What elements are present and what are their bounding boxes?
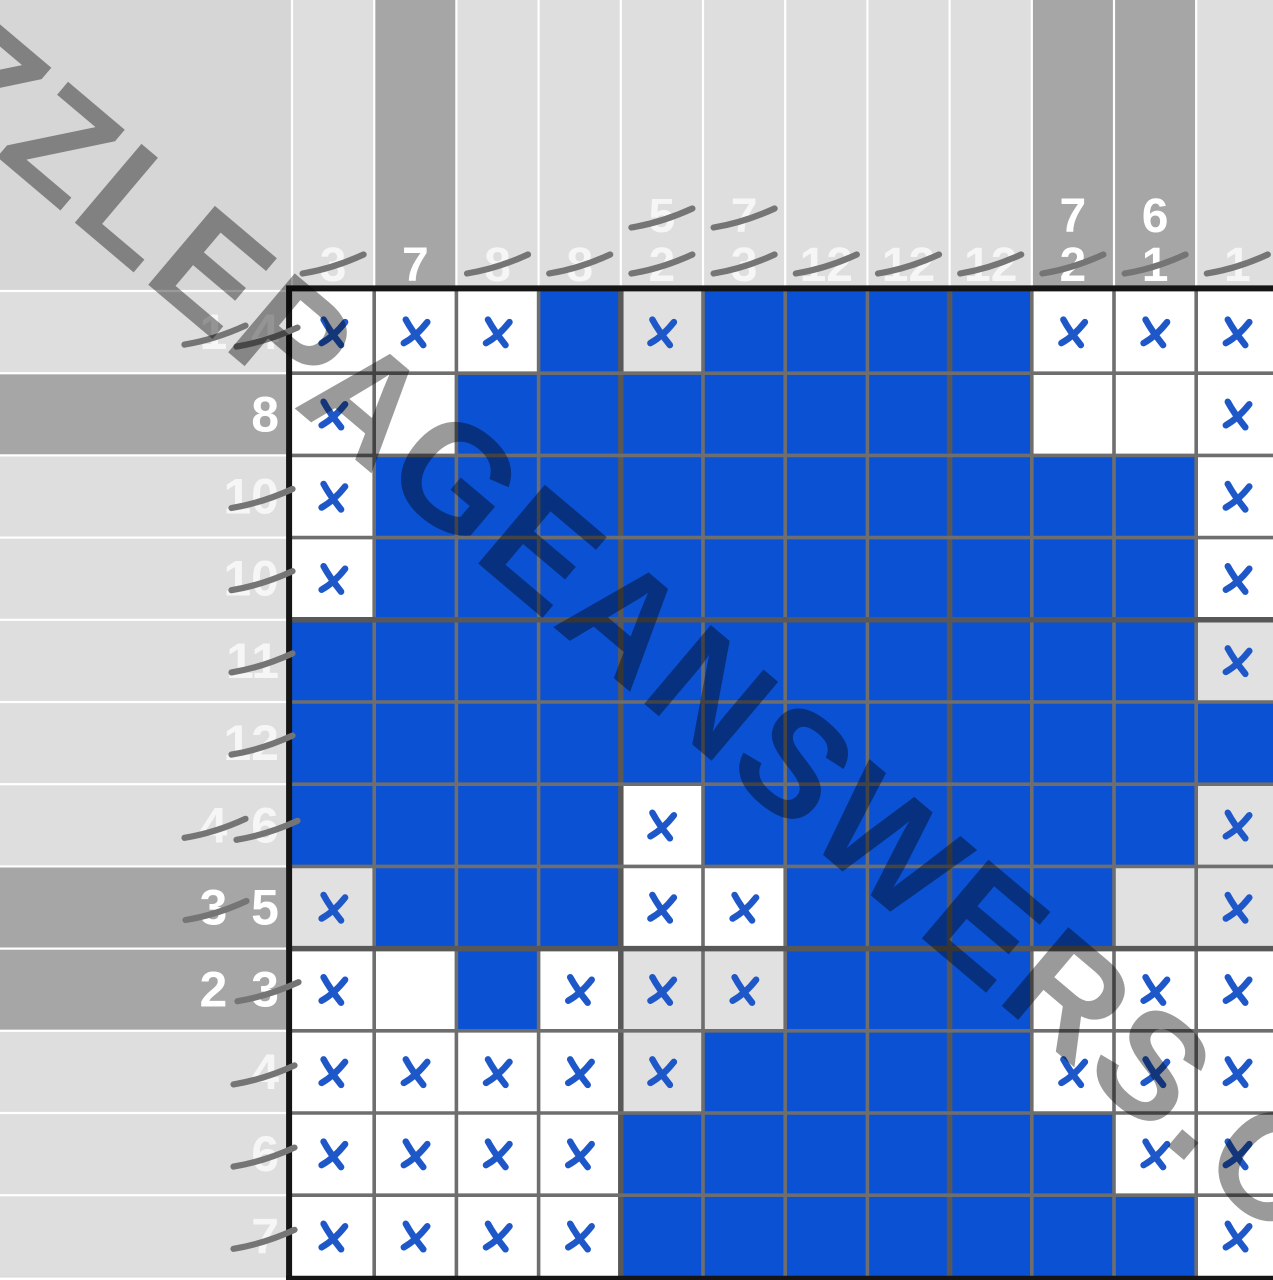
svg-text:7: 7 bbox=[1060, 190, 1087, 243]
svg-text:4 6: 4 6 bbox=[199, 797, 279, 853]
svg-text:6: 6 bbox=[1142, 190, 1169, 243]
svg-text:2 3: 2 3 bbox=[199, 962, 279, 1018]
svg-text:7: 7 bbox=[402, 239, 429, 292]
